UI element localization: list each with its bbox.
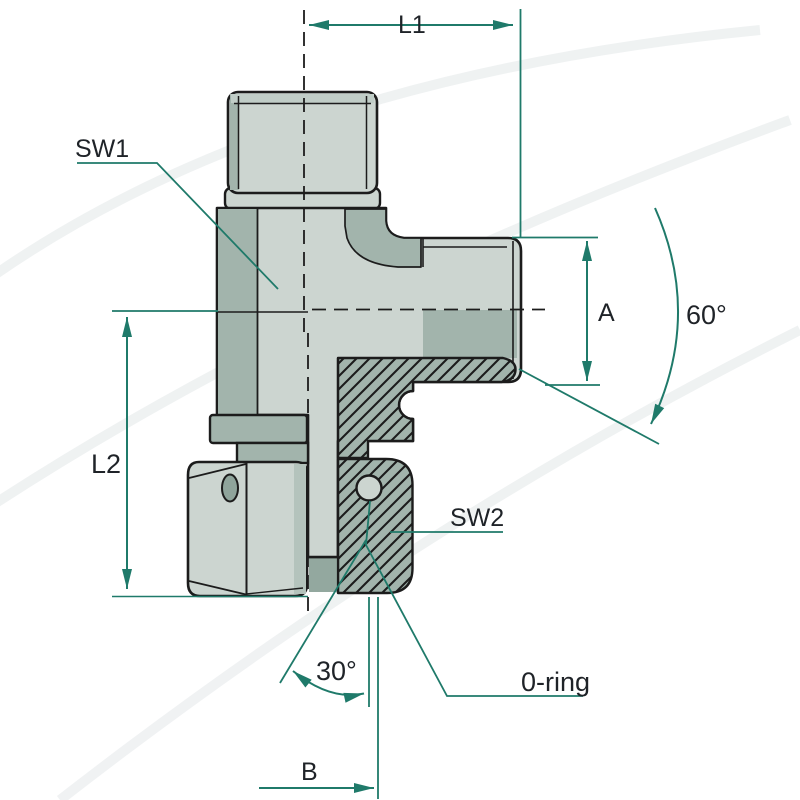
collar: [237, 443, 308, 463]
section-hatch-upper: [338, 358, 516, 458]
label-a: A: [598, 299, 615, 327]
stem-cavity: [309, 558, 337, 592]
stud-left-shade: [230, 94, 239, 190]
fitting-dimension-diagram: L1 SW1 L2 A 60° SW2 0-ring 30° B: [0, 0, 800, 800]
dimension-b: [259, 597, 378, 799]
label-sw2: SW2: [450, 504, 504, 532]
label-oring: 0-ring: [521, 667, 590, 697]
nut-right-shade: [294, 464, 306, 594]
label-angle-60: 60°: [686, 300, 727, 330]
label-b: B: [301, 758, 318, 786]
washer: [210, 415, 307, 443]
label-angle-30: 30°: [316, 656, 357, 686]
o-ring: [357, 476, 382, 501]
label-l2: L2: [91, 449, 121, 479]
dimension-a: [512, 238, 600, 386]
swivel-nut: [188, 462, 307, 596]
port-lower-shade: [423, 310, 517, 358]
top-stud: [228, 92, 377, 193]
label-sw1: SW1: [75, 135, 129, 163]
stud-top-shade: [231, 94, 374, 103]
nut-weep-hole: [222, 475, 238, 502]
label-l1: L1: [398, 11, 426, 39]
drawing-canvas: L1 SW1 L2 A 60° SW2 0-ring 30° B: [0, 0, 800, 800]
